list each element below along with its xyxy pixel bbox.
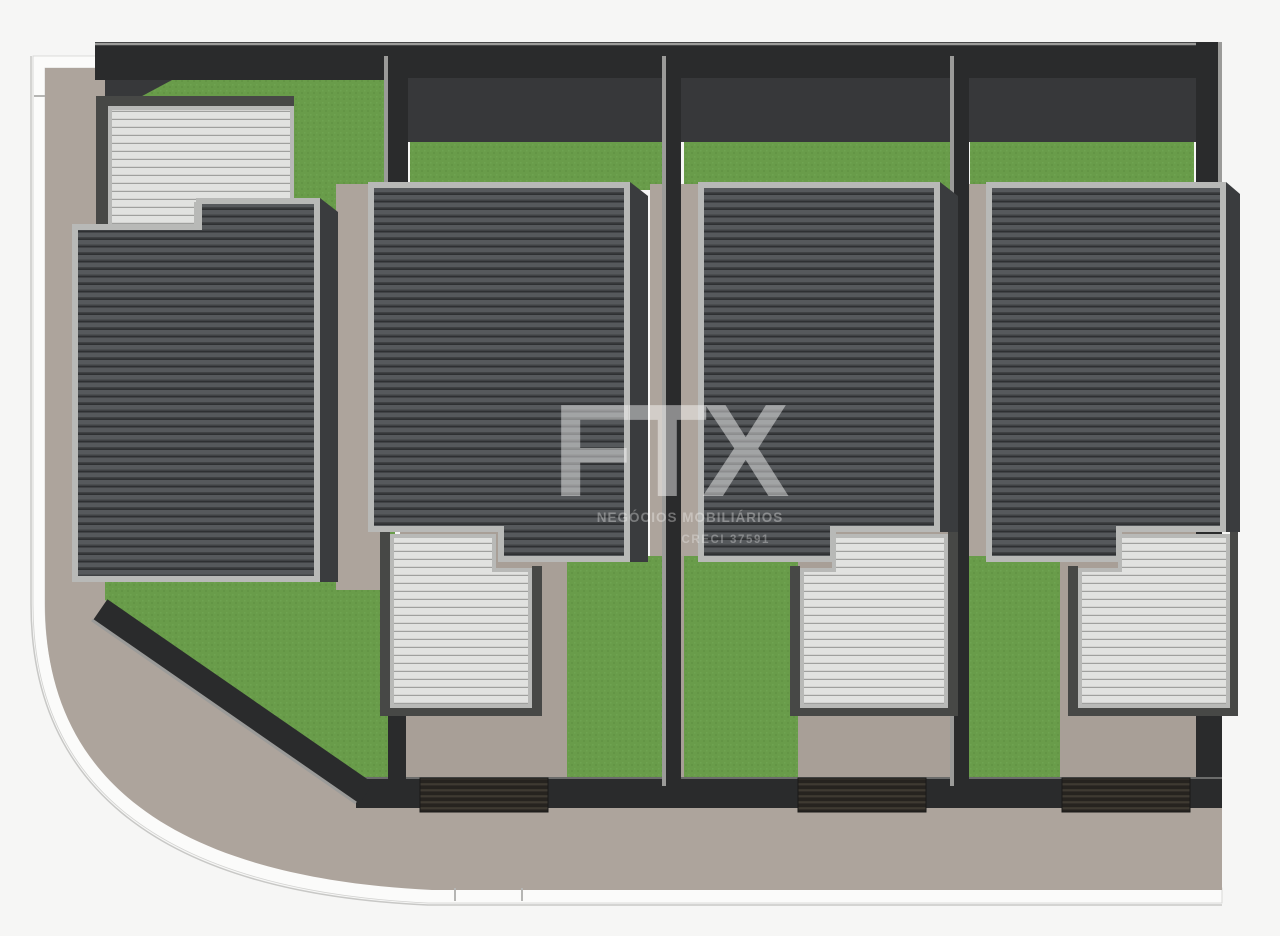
unit-3-gate — [798, 778, 926, 812]
watermark: FTX NEGÓCIOS MOBILIÁRIOS CRECI 37591 — [552, 377, 788, 546]
unit-4-front-lawn — [966, 556, 1060, 782]
unit-2-gate — [420, 778, 548, 812]
site-plan-canvas: FTX NEGÓCIOS MOBILIÁRIOS CRECI 37591 — [0, 0, 1280, 936]
unit-4-gate — [1062, 778, 1190, 812]
watermark-license-text: CRECI 37591 — [681, 534, 770, 546]
unit-2-front-lawn — [567, 556, 664, 782]
unit-1-main-roof — [72, 198, 338, 582]
watermark-brand-text: FTX — [552, 377, 788, 524]
boundary-wall-top-face — [404, 78, 1196, 142]
boundary-wall-top — [95, 42, 1222, 80]
unit-4-main-roof — [986, 182, 1240, 562]
unit-3-front-lawn — [684, 556, 798, 782]
boundary-wall-right-cap — [1218, 42, 1222, 202]
watermark-tagline-text: NEGÓCIOS MOBILIÁRIOS — [597, 510, 784, 525]
site-plan-render: FTX NEGÓCIOS MOBILIÁRIOS CRECI 37591 — [0, 0, 1280, 936]
